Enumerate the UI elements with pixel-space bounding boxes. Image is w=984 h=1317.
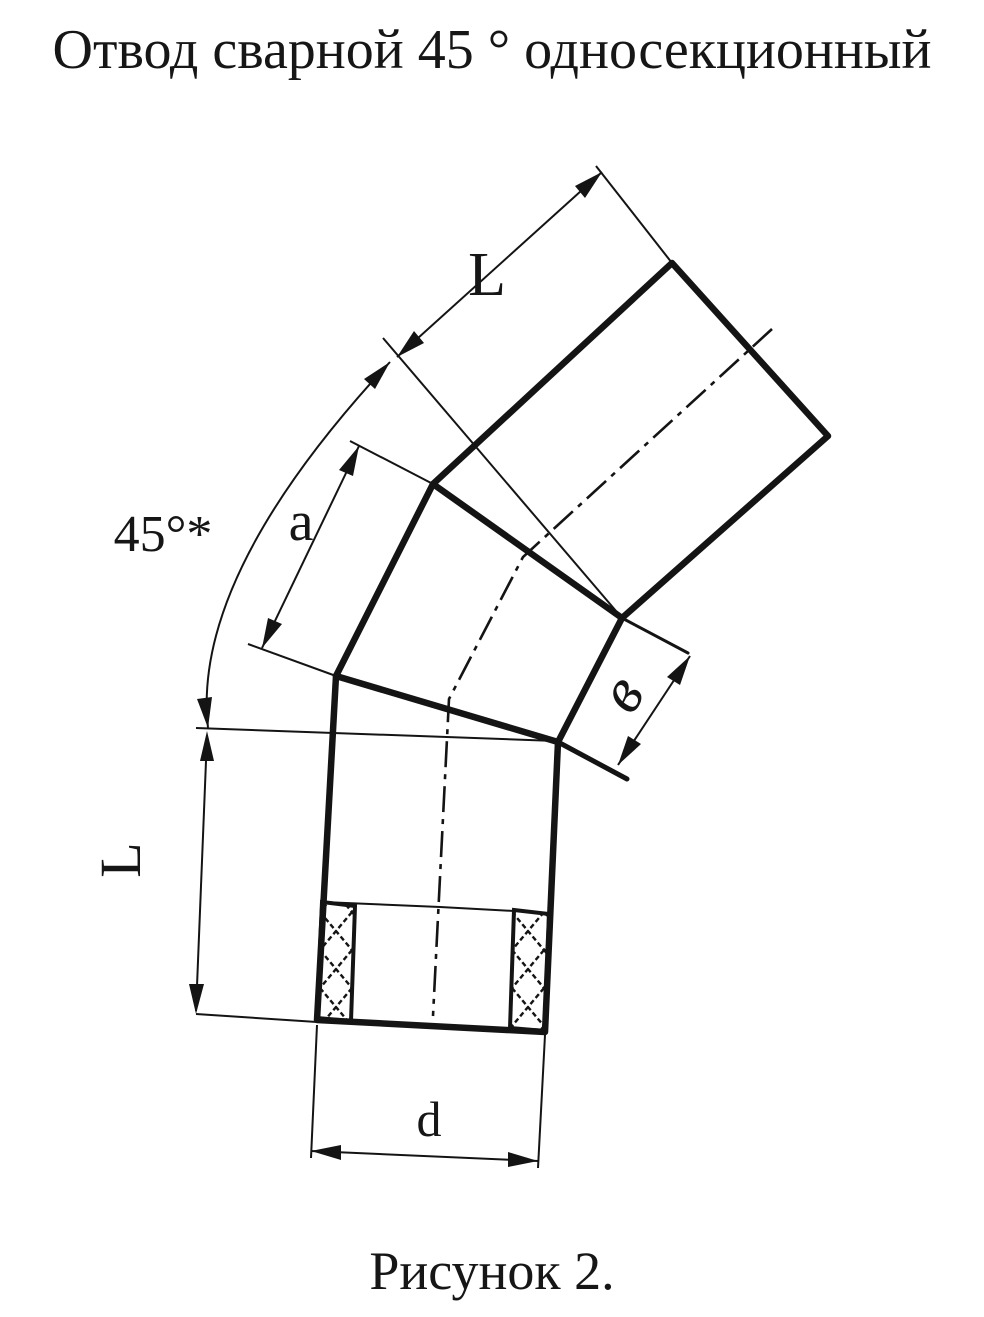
extension-line (596, 166, 672, 263)
extension-line (350, 441, 433, 484)
elbow-technical-drawing: L 45°* a в (0, 0, 984, 1317)
right-wall-section (510, 910, 549, 1031)
label-angle: 45°* (114, 506, 213, 563)
extension-line (538, 1035, 545, 1168)
scanned-drawing-page: Отвод сварной 45 ° односекционный (0, 0, 984, 1317)
arrowhead (508, 1152, 538, 1167)
label-left-length: L (88, 842, 153, 877)
extension-line (248, 644, 336, 676)
extension-line (311, 1025, 317, 1158)
arrowhead (311, 1145, 341, 1160)
arrowhead (339, 446, 359, 476)
seam-lower-extension (558, 742, 627, 779)
extension-line-inner-corner (383, 338, 622, 618)
dimension-a (248, 441, 433, 676)
label-top-length: L (468, 241, 506, 309)
arrowhead (575, 172, 602, 198)
arrowhead (197, 697, 212, 728)
dimension-L-left (189, 728, 556, 1022)
extension-line (196, 728, 556, 741)
arrowhead (397, 331, 424, 357)
pipe-body-path (317, 263, 828, 1032)
seam-upper-extension (622, 618, 688, 653)
figure-caption: Рисунок 2. (0, 1240, 984, 1302)
arrowhead (200, 731, 214, 761)
label-seam-offset: в (583, 662, 658, 724)
label-section-width: a (289, 491, 314, 553)
arrowhead (262, 618, 282, 648)
dimension-line (196, 736, 207, 1011)
arrowhead (618, 736, 641, 765)
weld-seam-upper (433, 484, 622, 618)
pipe-outline (317, 263, 828, 1032)
dimension-line (311, 1151, 538, 1161)
label-diameter: d (417, 1091, 442, 1147)
extension-line (196, 1014, 317, 1022)
left-wall-section (317, 902, 355, 1021)
arrowhead (189, 984, 204, 1014)
arrowhead (667, 656, 690, 685)
